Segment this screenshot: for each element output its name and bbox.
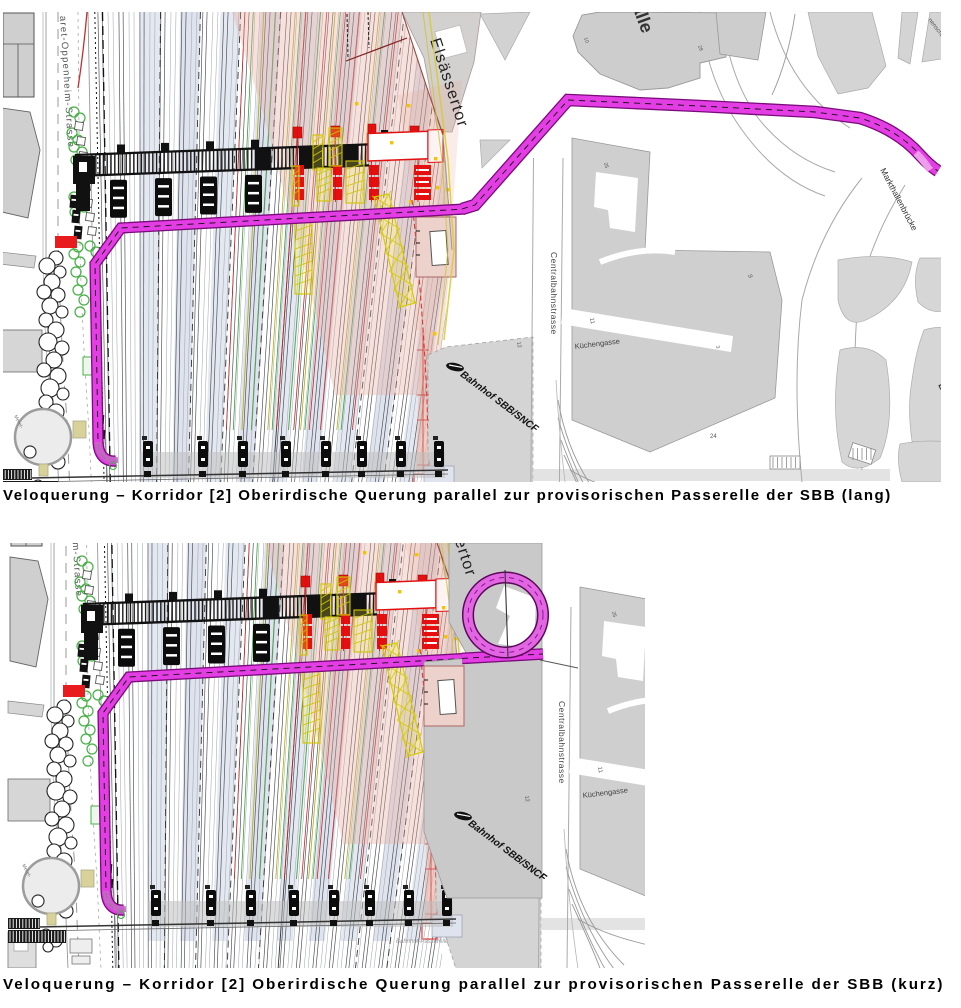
svg-text:12: 12 bbox=[523, 795, 530, 802]
